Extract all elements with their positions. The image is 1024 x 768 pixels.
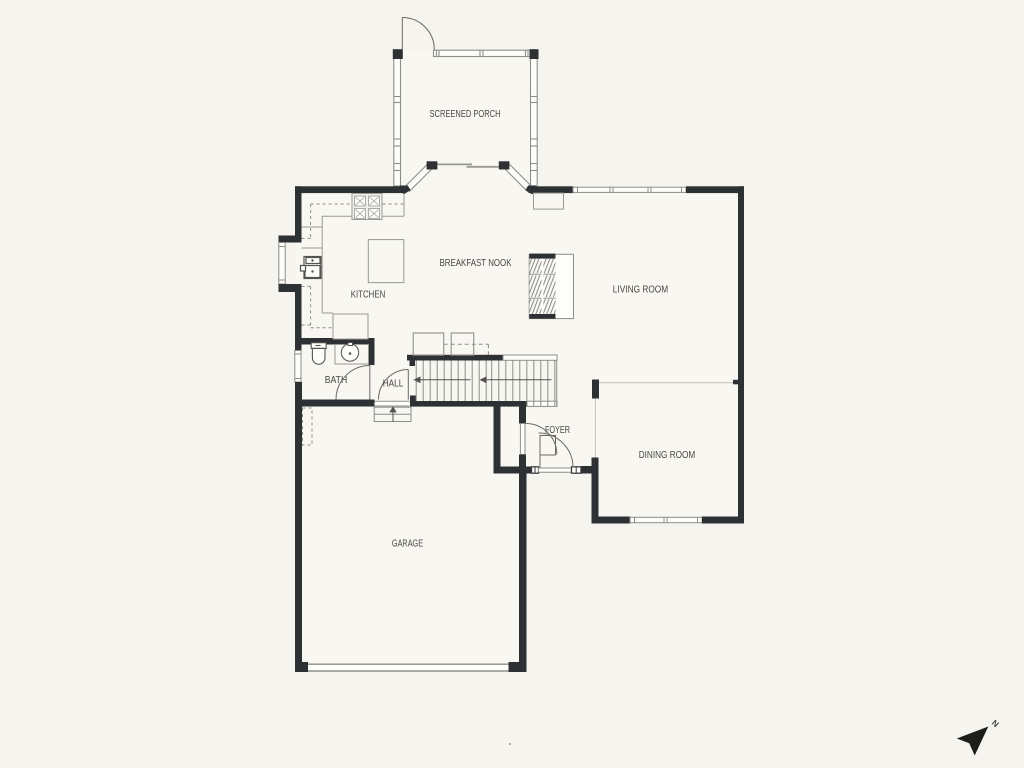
- svg-text:BREAKFAST NOOK: BREAKFAST NOOK: [440, 257, 512, 269]
- svg-text:DINING ROOM: DINING ROOM: [639, 449, 696, 461]
- svg-text:FOYER: FOYER: [545, 424, 570, 436]
- svg-text:LIVING ROOM: LIVING ROOM: [613, 283, 668, 295]
- svg-text:HALL: HALL: [383, 378, 404, 390]
- svg-text:GARAGE: GARAGE: [392, 538, 423, 550]
- svg-text:BATH: BATH: [325, 374, 348, 386]
- svg-text:KITCHEN: KITCHEN: [351, 289, 386, 301]
- svg-text:SCREENED PORCH: SCREENED PORCH: [430, 108, 501, 120]
